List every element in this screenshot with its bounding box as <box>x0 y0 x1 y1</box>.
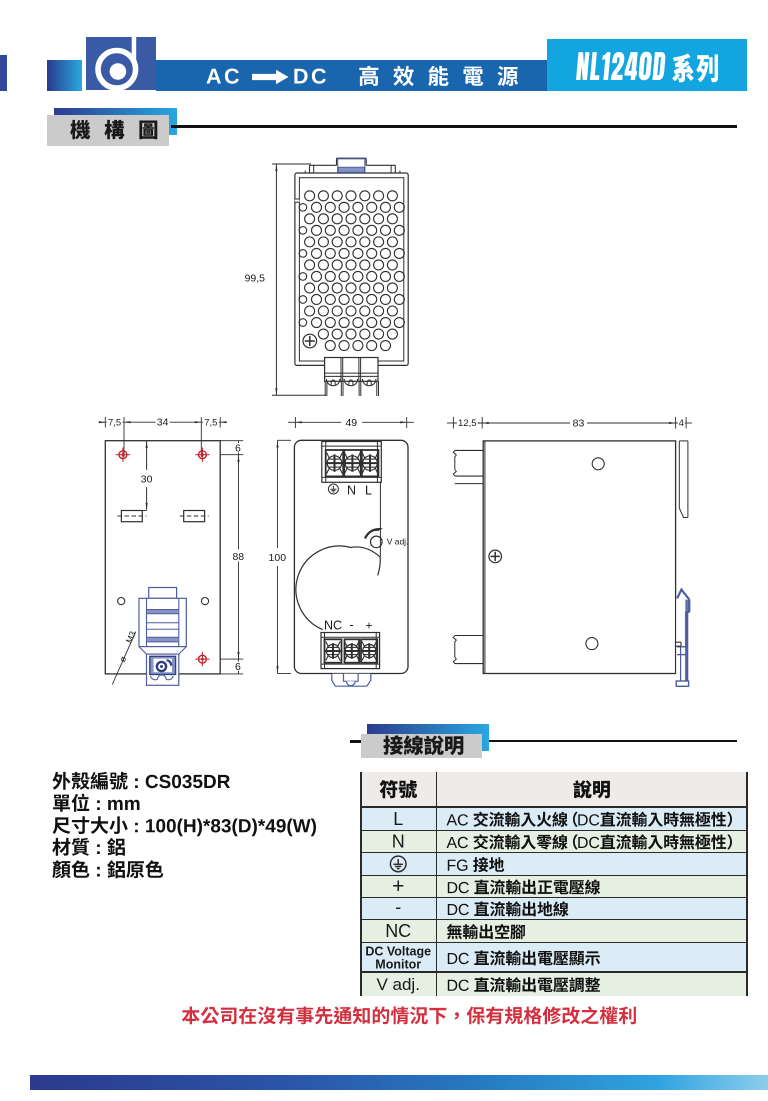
svg-text:7,5: 7,5 <box>108 417 121 428</box>
svg-text:V adj.: V adj. <box>376 975 419 994</box>
svg-text:-: - <box>349 617 353 632</box>
svg-text:12,5: 12,5 <box>458 418 477 429</box>
svg-text:NC: NC <box>324 619 342 633</box>
svg-text:83: 83 <box>573 417 585 429</box>
svg-text:NC: NC <box>385 921 411 941</box>
svg-text:Monitor: Monitor <box>375 957 421 971</box>
svg-text:L: L <box>393 809 403 829</box>
svg-text:30: 30 <box>141 474 153 486</box>
svg-text:DC Voltage: DC Voltage <box>365 944 431 958</box>
svg-text:-: - <box>395 897 401 917</box>
svg-text:4: 4 <box>679 418 684 429</box>
svg-text:L: L <box>365 483 372 497</box>
svg-text:+: + <box>365 618 372 632</box>
svg-text:49: 49 <box>345 417 357 429</box>
svg-text:V adj.: V adj. <box>387 537 409 547</box>
svg-text:34: 34 <box>157 417 169 429</box>
svg-text:N: N <box>347 483 356 497</box>
svg-text:7,5: 7,5 <box>204 417 217 428</box>
svg-text:N: N <box>392 832 405 852</box>
svg-text:+: + <box>392 875 404 898</box>
svg-text:6: 6 <box>235 442 241 454</box>
svg-text:88: 88 <box>232 551 244 563</box>
svg-text:99,5: 99,5 <box>245 273 266 285</box>
svg-text:100: 100 <box>269 552 287 564</box>
svg-text:6: 6 <box>235 661 241 673</box>
